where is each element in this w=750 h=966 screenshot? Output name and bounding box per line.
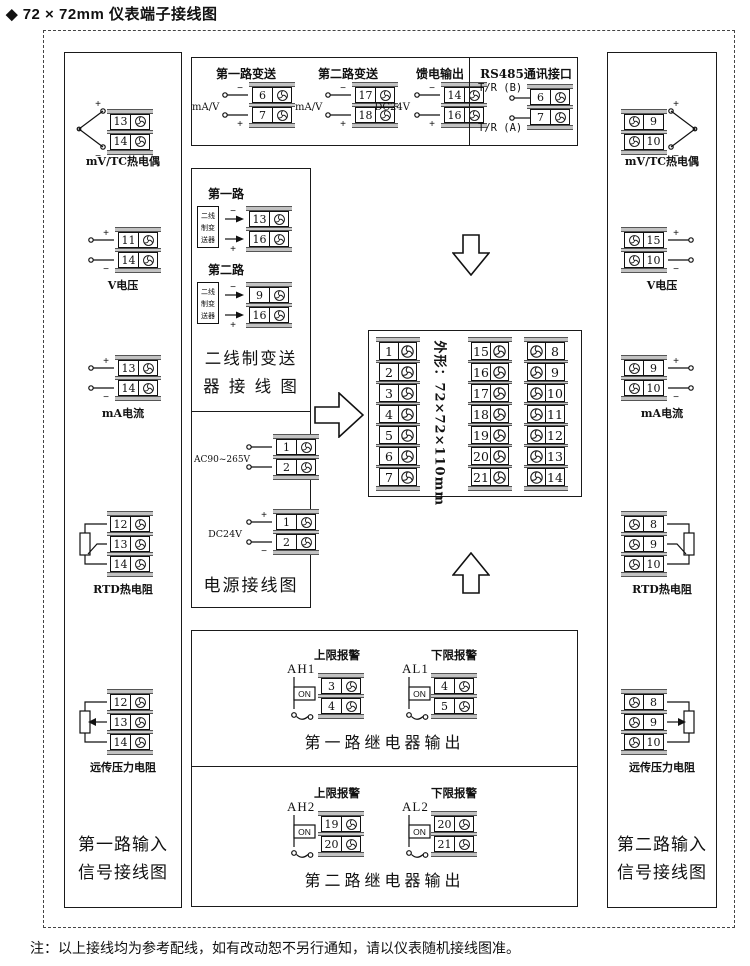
terminal-number: 13 (546, 447, 565, 465)
right-input-signal-box: 910 +− mV/TC热电偶 1510 +− V电压 910 +− mA电流 … (607, 52, 717, 908)
svg-text:−: − (340, 83, 346, 94)
svg-text:−: − (673, 264, 679, 275)
potentiometer-symbol (667, 689, 701, 760)
group-label: 第一路 (198, 185, 254, 202)
section-current-right: 910 +− (624, 355, 695, 406)
terminal-block: 1314 (110, 109, 150, 155)
wire-arrows: −+ (222, 282, 246, 333)
screw-icon (492, 470, 507, 485)
svg-text:−: − (103, 264, 109, 275)
terminal-number: 17 (471, 384, 490, 402)
screw-icon (492, 365, 507, 380)
terminal-block: 67 (530, 84, 570, 130)
terminal-screw (296, 534, 316, 550)
terminal-screw (490, 447, 509, 465)
relay-contact-symbol: ON (404, 677, 438, 727)
terminal-number: 4 (434, 678, 454, 694)
thermocouple-junction: +− (75, 103, 107, 160)
terminal-number: 9 (644, 360, 664, 376)
svg-text:+: + (673, 228, 679, 239)
terminal-1: 1 (379, 342, 417, 360)
lead-wires: +− (87, 355, 115, 406)
terminal-number: 4 (379, 405, 398, 423)
screw-icon (345, 680, 358, 693)
terminal-9: 9 (624, 536, 664, 552)
svg-text:+: + (103, 228, 109, 239)
terminal-screw (269, 307, 289, 323)
terminal-number: 9 (249, 287, 269, 303)
terminal-screw (624, 734, 644, 750)
section-label: mA电流 (65, 405, 181, 421)
screw-icon (628, 538, 641, 551)
transmitter-device-box: 二线 制变 送器 (197, 206, 219, 248)
terminal-15: 15 (471, 342, 509, 360)
terminal-screw (454, 698, 474, 714)
two-wire-transmitter-box: 第一路 二线 制变 送器 −+ 1316 第二路 二线 制变 送器 −+ 916… (191, 168, 311, 412)
lead-wires: +− (87, 227, 115, 278)
terminal-number: 3 (321, 678, 341, 694)
section-label: RTD热电阻 (65, 581, 181, 597)
terminal-14: 14 (110, 556, 150, 572)
terminal-block: 12 (276, 509, 316, 555)
relay-contact-symbol: ON (404, 815, 438, 865)
terminal-2: 2 (379, 363, 417, 381)
screw-icon (628, 234, 641, 247)
lead-wires: −+ (221, 82, 249, 133)
section-current-left: +− 1314 (87, 355, 158, 406)
feed-output-group: DC24V −+ 1416 (374, 82, 484, 133)
terminal-11: 11 (527, 405, 565, 423)
terminal-block: 916 (249, 282, 289, 328)
footer-note: 注：以上接线均为参考配线，如有改动恕不另行通知，请以仪表随机接线图准。 (30, 938, 520, 958)
terminal-number: 15 (644, 232, 664, 248)
group-label: 第二路 (198, 261, 254, 278)
terminal-number: 16 (249, 231, 269, 247)
section-label: 远传压力电阻 (608, 759, 716, 775)
terminal-number: 10 (644, 252, 664, 268)
terminal-screw (550, 89, 570, 105)
terminal-9: 9 (249, 287, 289, 303)
svg-text:+: + (230, 320, 236, 331)
svg-text:−: − (230, 206, 236, 217)
relay-contact: ON (289, 815, 323, 870)
lead-lines (245, 434, 273, 480)
screw-icon (400, 365, 415, 380)
terminal-screw (527, 447, 546, 465)
screw-icon (142, 234, 155, 247)
alarm-tag: AH2 (287, 799, 315, 815)
screw-icon (400, 344, 415, 359)
terminal-cap (621, 750, 667, 755)
terminal-screw (490, 342, 509, 360)
terminal-17: 17 (471, 384, 509, 402)
terminal-screw (398, 426, 417, 444)
terminal-screw (624, 232, 644, 248)
terminal-screw (624, 536, 644, 552)
terminal-block: 910 (624, 355, 664, 401)
terminal-21: 21 (471, 468, 509, 486)
screw-icon (345, 838, 358, 851)
terminal-14: 14 (118, 380, 158, 396)
terminal-screw (130, 734, 150, 750)
signal-type-label: mA/V (295, 102, 321, 113)
terminal-block: 2021 (434, 811, 474, 857)
lead-wires: +− (667, 355, 695, 406)
screw-icon (345, 818, 358, 831)
ac-power-group: AC90~265V 12 (194, 434, 316, 485)
terminal-screw (341, 698, 361, 714)
terminal-number: 21 (471, 468, 490, 486)
terminal-screw (624, 556, 644, 572)
alarm-tag: AL1 (402, 661, 429, 677)
screw-icon (400, 470, 415, 485)
wire-arrows: −+ (222, 206, 246, 257)
lead-lines: −+ (413, 82, 441, 128)
down-arrow-icon (452, 234, 490, 281)
terminal-block: 12 (276, 434, 316, 480)
terminal-5: 5 (434, 698, 474, 714)
terminal-number: 18 (471, 405, 490, 423)
lead-line (508, 92, 530, 104)
terminal-screw (398, 468, 417, 486)
screw-icon (400, 407, 415, 422)
terminal-10: 10 (624, 252, 664, 268)
terminal-screw (490, 363, 509, 381)
section-label: RTD热电阻 (608, 581, 716, 597)
power-box: AC90~265V 12 DC24V +− 12 电源接线图 (191, 411, 311, 608)
terminal-cap (621, 572, 667, 577)
screw-icon (529, 365, 544, 380)
screw-icon (134, 736, 147, 749)
lead-wires (245, 434, 273, 485)
screw-icon (628, 115, 641, 128)
terminal-10: 10 (624, 734, 664, 750)
terminal-number: 9 (546, 363, 565, 381)
terminal-cap (621, 396, 667, 401)
svg-text:−: − (237, 83, 243, 94)
alarm-tag: AL2 (402, 799, 429, 815)
lead-lines: +− (87, 355, 115, 401)
lead-wires: −+ (413, 82, 441, 133)
power-type-label: DC24V (194, 529, 242, 540)
terminal-9: 9 (624, 360, 664, 376)
terminal-number: 3 (379, 384, 398, 402)
lead-lines: +− (245, 509, 273, 555)
terminal-6: 6 (379, 447, 417, 465)
terminal-16: 16 (471, 363, 509, 381)
terminal-13: 13 (110, 114, 150, 130)
relay-output-box-1: 上限报警 AH1 ON 34 下限报警 AL1 ON 45 第一路继电器输出 (191, 630, 578, 767)
alarm-tag: AH1 (287, 661, 315, 677)
terminal-number: 10 (644, 380, 664, 396)
terminal-cap (246, 323, 292, 328)
terminal-number: 11 (546, 405, 565, 423)
svg-text:+: + (103, 356, 109, 367)
terminal-screw (624, 516, 644, 532)
terminal-cap (318, 852, 364, 857)
section-rtd-left: 121314 (73, 511, 150, 582)
terminal-7: 7 (530, 109, 570, 125)
terminal-number: 12 (546, 426, 565, 444)
screw-icon (529, 449, 544, 464)
terminal-3: 3 (321, 678, 361, 694)
section-voltage-right: 1510 +− (624, 227, 695, 278)
terminal-screw (138, 360, 158, 376)
terminal-number: 6 (379, 447, 398, 465)
screw-icon (134, 135, 147, 148)
terminal-screw (130, 114, 150, 130)
svg-text:+: + (340, 119, 346, 130)
resistor-symbol (667, 511, 701, 582)
terminal-10: 10 (624, 380, 664, 396)
terminal-number: 15 (471, 342, 490, 360)
terminal-block: 1314 (118, 355, 158, 401)
terminal-13: 13 (110, 714, 150, 730)
terminal-19: 19 (471, 426, 509, 444)
thermocouple-symbol: +− (75, 103, 107, 155)
terminal-10: 10 (527, 384, 565, 402)
terminal-screw (398, 447, 417, 465)
terminal-column-15-21: 15161718192021 (471, 337, 509, 491)
screw-icon (458, 700, 471, 713)
terminal-15: 15 (624, 232, 664, 248)
screw-icon (300, 516, 313, 529)
relay-output-box-2: 上限报警 AH2 ON 1920 下限报警 AL2 ON 2021 第二路继电器… (191, 766, 578, 907)
terminal-block: 45 (434, 673, 474, 719)
terminal-number: 13 (110, 536, 130, 552)
terminal-number: 19 (471, 426, 490, 444)
up-arrow-glyph (452, 552, 490, 594)
terminal-screw (454, 836, 474, 852)
screw-icon (492, 428, 507, 443)
terminal-number: 16 (471, 363, 490, 381)
terminal-20: 20 (321, 836, 361, 852)
resistor-symbol (667, 511, 701, 577)
terminal-13: 13 (118, 360, 158, 376)
section-pressure-left: 121314 (73, 689, 150, 760)
terminal-8: 8 (527, 342, 565, 360)
terminal-number: 9 (644, 536, 664, 552)
terminal-screw (272, 87, 292, 103)
case-size-label: 外形：72×72×110mm (432, 341, 451, 491)
terminal-number: 2 (276, 534, 296, 550)
screw-icon (628, 736, 641, 749)
terminal-21: 21 (434, 836, 474, 852)
terminal-screw (624, 714, 644, 730)
terminal-number: 9 (644, 114, 664, 130)
terminal-14: 14 (110, 134, 150, 150)
terminal-13: 13 (110, 536, 150, 552)
terminal-cap (621, 268, 667, 273)
screw-icon (273, 233, 286, 246)
terminal-cap (115, 268, 161, 273)
svg-text:ON: ON (298, 689, 311, 699)
terminal-10: 10 (624, 134, 664, 150)
screw-icon (529, 386, 544, 401)
terminal-number: 12 (110, 694, 130, 710)
relay-box-title: 第一路继电器输出 (192, 729, 577, 753)
relay-contact-symbol: ON (289, 677, 323, 727)
terminal-screw (527, 405, 546, 423)
terminal-number: 11 (118, 232, 138, 248)
terminal-14: 14 (527, 468, 565, 486)
terminal-6: 6 (530, 89, 570, 105)
terminal-screw (464, 107, 484, 123)
terminal-screw (527, 342, 546, 360)
terminal-block: 67 (252, 82, 292, 128)
terminal-cap (107, 572, 153, 577)
lead-wires: +− (245, 509, 273, 560)
terminal-number: 7 (530, 109, 550, 125)
terminal-9: 9 (624, 114, 664, 130)
terminal-cap (431, 852, 477, 857)
right-arrow-icon (314, 392, 364, 443)
screw-icon (529, 470, 544, 485)
terminal-16: 16 (444, 107, 484, 123)
terminal-number: 2 (379, 363, 398, 381)
transmitter-arrows: −+ (222, 282, 246, 328)
screw-icon (273, 213, 286, 226)
relay-box-title: 第二路继电器输出 (192, 867, 577, 891)
terminal-number: 18 (355, 107, 375, 123)
terminal-number: 1 (276, 439, 296, 455)
rs485-line-a: T/R (A) (478, 122, 522, 134)
terminal-screw (272, 107, 292, 123)
terminal-number: 14 (110, 556, 130, 572)
lead-lines: −+ (324, 82, 352, 128)
section-mvtc-left: +− 1314 (75, 103, 150, 160)
terminal-number: 13 (118, 360, 138, 376)
up-arrow-icon (452, 552, 490, 599)
terminal-block: 121314 (110, 511, 150, 577)
screw-icon (134, 518, 147, 531)
screw-icon (300, 461, 313, 474)
screw-icon (134, 716, 147, 729)
terminal-block: 910 (624, 109, 664, 155)
terminal-screw (527, 468, 546, 486)
section-label: V电压 (65, 277, 181, 293)
terminal-screw (454, 678, 474, 694)
terminal-screw (296, 514, 316, 530)
screw-icon (345, 700, 358, 713)
svg-text:+: + (673, 99, 679, 110)
rs485-divider (469, 58, 470, 145)
potentiometer-symbol (73, 689, 107, 760)
terminal-block: 8910 (624, 511, 664, 577)
terminal-block: 8910 (624, 689, 664, 755)
thermocouple-junction: +− (667, 103, 699, 160)
screw-icon (529, 344, 544, 359)
terminal-10: 10 (624, 556, 664, 572)
terminal-cap (273, 550, 319, 555)
terminal-5: 5 (379, 426, 417, 444)
terminal-screw (398, 363, 417, 381)
power-box-title: 电源接线图 (192, 572, 310, 600)
left-box-title: 第一路输入 信号接线图 (65, 831, 181, 887)
svg-text:ON: ON (413, 827, 426, 837)
terminal-cap (431, 714, 477, 719)
terminal-screw (341, 678, 361, 694)
terminal-screw (138, 380, 158, 396)
screw-icon (492, 407, 507, 422)
terminal-1: 1 (276, 514, 316, 530)
terminal-screw (398, 342, 417, 360)
terminal-cap (468, 486, 512, 491)
terminal-number: 20 (434, 816, 454, 832)
terminal-number: 6 (252, 87, 272, 103)
terminal-screw (624, 360, 644, 376)
terminal-20: 20 (471, 447, 509, 465)
screw-icon (142, 382, 155, 395)
power-type-label: AC90~265V (194, 455, 242, 465)
lead-lines: +− (667, 227, 695, 273)
screw-icon (300, 441, 313, 454)
terminal-column-8-14: 891011121314 (527, 337, 565, 491)
lead-wires: −+ (324, 82, 352, 133)
screw-icon (492, 449, 507, 464)
terminal-number: 10 (644, 134, 664, 150)
left-input-signal-box: +− 1314 mV/TC热电偶 +− 1114 V电压 +− 1314 mA电… (64, 52, 182, 908)
terminal-screw (296, 459, 316, 475)
rs485-label: RS485通讯接口 (474, 65, 578, 82)
transmitter-device-box: 二线 制变 送器 (197, 282, 219, 324)
terminal-2: 2 (276, 534, 316, 550)
terminal-screw (550, 109, 570, 125)
terminal-cap (246, 247, 292, 252)
terminal-number: 13 (110, 114, 130, 130)
terminal-number: 10 (546, 384, 565, 402)
terminal-number: 17 (355, 87, 375, 103)
terminal-screw (341, 836, 361, 852)
terminal-cap (527, 125, 573, 130)
terminal-number: 5 (434, 698, 454, 714)
terminal-screw (624, 114, 644, 130)
section-label: 远传压力电阻 (65, 759, 181, 775)
terminal-1: 1 (276, 439, 316, 455)
screw-icon (628, 135, 641, 148)
resistor-symbol (73, 511, 107, 577)
screw-icon (529, 428, 544, 443)
terminal-cap (115, 396, 161, 401)
screw-icon (400, 428, 415, 443)
screw-icon (492, 344, 507, 359)
terminal-screw (398, 384, 417, 402)
section-label: mA电流 (608, 405, 716, 421)
relay-contact: ON (404, 815, 438, 870)
terminal-number: 5 (379, 426, 398, 444)
screw-icon (458, 818, 471, 831)
terminal-11: 11 (118, 232, 158, 248)
screw-icon (628, 558, 641, 571)
terminal-screw (138, 252, 158, 268)
terminal-cap (273, 475, 319, 480)
terminal-screw (269, 211, 289, 227)
terminal-block: 121314 (110, 689, 150, 755)
terminal-cap (376, 486, 420, 491)
terminal-screw (138, 232, 158, 248)
terminal-number: 21 (434, 836, 454, 852)
terminal-9: 9 (624, 714, 664, 730)
terminal-number: 2 (276, 459, 296, 475)
terminal-number: 1 (276, 514, 296, 530)
svg-text:+: + (230, 244, 236, 255)
terminal-number: 16 (444, 107, 464, 123)
terminal-4: 4 (321, 698, 361, 714)
svg-text:−: − (673, 392, 679, 403)
terminal-number: 12 (110, 516, 130, 532)
screw-icon (458, 680, 471, 693)
lead-lines: −+ (221, 82, 249, 128)
